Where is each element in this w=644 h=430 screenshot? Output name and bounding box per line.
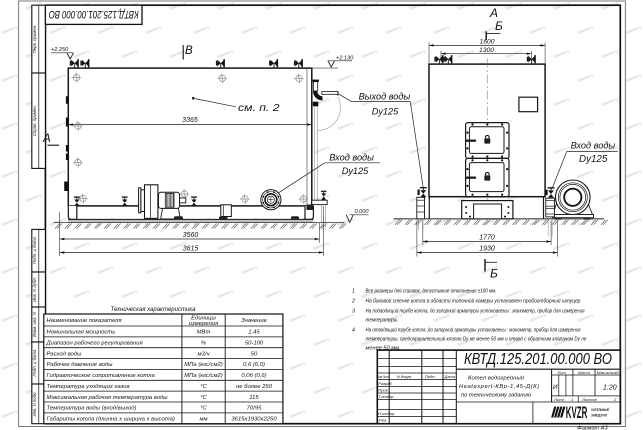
- svg-text:teplokot-kvzr.kz: teplokot-kvzr.kz: [625, 216, 643, 227]
- svg-text:teplokot-kvzr.kz: teplokot-kvzr.kz: [145, 24, 163, 35]
- svg-text:Взам. инв. N: Взам. инв. N: [32, 311, 37, 337]
- svg-text:teplokot-kvzr.kz: teplokot-kvzr.kz: [97, 264, 115, 275]
- svg-text:teplokot-kvzr.kz: teplokot-kvzr.kz: [289, 264, 307, 275]
- svg-text:teplokot-kvzr.kz: teplokot-kvzr.kz: [385, 264, 403, 275]
- svg-text:КВТД.125.201.00.000 ВО: КВТД.125.201.00.000 ВО: [48, 8, 138, 20]
- svg-text:3615: 3615: [183, 245, 199, 252]
- svg-text:teplokot-kvzr.kz: teplokot-kvzr.kz: [1, 120, 19, 131]
- svg-text:В: В: [185, 45, 193, 57]
- svg-text:Б: Б: [495, 19, 503, 33]
- svg-text:teplokot-kvzr.kz: teplokot-kvzr.kz: [361, 192, 379, 203]
- svg-text:teplokot-kvzr.kz: teplokot-kvzr.kz: [625, 360, 643, 371]
- svg-text:Гидравлическое сопротивление к: Гидравлическое сопротивление котла: [47, 373, 156, 379]
- svg-text:мм: мм: [199, 417, 207, 423]
- svg-text:teplokot-kvzr.kz: teplokot-kvzr.kz: [601, 336, 619, 347]
- svg-text:teplokot-kvzr.kz: teplokot-kvzr.kz: [505, 240, 523, 251]
- svg-text:Номинальная мощность: Номинальная мощность: [47, 330, 116, 336]
- svg-text:teplokot-kvzr.kz: teplokot-kvzr.kz: [289, 408, 307, 419]
- svg-text:teplokot-kvzr.kz: teplokot-kvzr.kz: [217, 240, 235, 251]
- svg-text:teplokot-kvzr.kz: teplokot-kvzr.kz: [553, 96, 571, 107]
- svg-text:Котел водогрейный: Котел водогрейный: [468, 374, 525, 381]
- svg-text:0.000: 0.000: [355, 209, 370, 215]
- svg-text:КВТД.125.201.00.000 ВО: КВТД.125.201.00.000 ВО: [464, 351, 612, 368]
- svg-text:teplokot-kvzr.kz: teplokot-kvzr.kz: [625, 72, 643, 83]
- svg-text:1770: 1770: [479, 234, 495, 241]
- svg-text:Перв. примен.: Перв. примен.: [32, 25, 37, 54]
- svg-text:МВт: МВт: [197, 330, 211, 336]
- svg-text:1: 1: [571, 397, 573, 402]
- svg-text:Инв. N подл.: Инв. N подл.: [32, 391, 37, 416]
- svg-text:teplokot-kvzr.kz: teplokot-kvzr.kz: [217, 288, 235, 299]
- svg-text:Дата: Дата: [444, 374, 456, 379]
- svg-text:teplokot-kvzr.kz: teplokot-kvzr.kz: [625, 24, 643, 35]
- svg-text:teplokot-kvzr.kz: teplokot-kvzr.kz: [25, 192, 43, 203]
- svg-text:2: 2: [351, 299, 355, 305]
- svg-text:Все размеры для справок, допус: Все размеры для справок, допустимые откл…: [366, 289, 497, 295]
- svg-text:teplokot-kvzr.kz: teplokot-kvzr.kz: [601, 48, 619, 59]
- svg-text:4: 4: [352, 327, 355, 333]
- svg-text:teplokot-kvzr.kz: teplokot-kvzr.kz: [385, 168, 403, 179]
- svg-text:teplokot-kvzr.kz: teplokot-kvzr.kz: [49, 168, 67, 179]
- svg-text:teplokot-kvzr.kz: teplokot-kvzr.kz: [409, 48, 427, 59]
- svg-text:teplokot-kvzr.kz: teplokot-kvzr.kz: [193, 24, 211, 35]
- svg-text:teplokot-kvzr.kz: teplokot-kvzr.kz: [1, 72, 19, 83]
- svg-text:teplokot-kvzr.kz: teplokot-kvzr.kz: [361, 384, 379, 395]
- svg-text:3: 3: [352, 308, 355, 314]
- svg-text:teplokot-kvzr.kz: teplokot-kvzr.kz: [49, 264, 67, 275]
- svg-text:Габариты котла (длинна х ширин: Габариты котла (длинна х ширина х высота…: [47, 417, 175, 423]
- svg-text:teplokot-kvzr.kz: teplokot-kvzr.kz: [529, 24, 547, 35]
- svg-text:teplokot-kvzr.kz: teplokot-kvzr.kz: [625, 312, 643, 323]
- svg-text:teplokot-kvzr.kz: teplokot-kvzr.kz: [625, 264, 643, 275]
- svg-text:На подводящий трубе котла, д: На подводящий трубе котла, до запорной а…: [366, 307, 585, 314]
- svg-text:teplokot-kvzr.kz: teplokot-kvzr.kz: [265, 48, 283, 59]
- svg-text:Температура воды (вход/выход): Температура воды (вход/выход): [47, 406, 137, 412]
- svg-text:teplokot-kvzr.kz: teplokot-kvzr.kz: [265, 288, 283, 299]
- svg-text:не более 250: не более 250: [236, 384, 273, 390]
- svg-text:Подп. и дата: Подп. и дата: [32, 349, 37, 377]
- svg-text:teplokot-kvzr.kz: teplokot-kvzr.kz: [241, 24, 259, 35]
- svg-text:Формат А3: Формат А3: [577, 426, 608, 430]
- svg-text:Утв.: Утв.: [378, 417, 387, 422]
- svg-text:teplokot-kvzr.kz: teplokot-kvzr.kz: [265, 240, 283, 251]
- svg-text:teplokot-kvzr.kz: teplokot-kvzr.kz: [385, 120, 403, 131]
- svg-text:1:20: 1:20: [603, 384, 617, 391]
- svg-text:Dy125: Dy125: [579, 154, 608, 165]
- svg-text:На отводящий трубе котла ,до з: На отводящий трубе котла ,до запорной ар…: [366, 326, 581, 333]
- svg-text:%: %: [201, 341, 206, 347]
- svg-text:Наименование показателя: Наименование показателя: [47, 318, 123, 324]
- svg-text:N докум.: N докум.: [397, 374, 412, 379]
- svg-text:Вход воды: Вход воды: [329, 153, 374, 163]
- svg-text:Листов: Листов: [581, 397, 597, 402]
- svg-text:1,45: 1,45: [248, 330, 260, 336]
- svg-text:50-100: 50-100: [245, 341, 264, 347]
- svg-text:teplokot-kvzr.kz: teplokot-kvzr.kz: [313, 144, 331, 155]
- svg-text:МПа (кгс/см2): МПа (кгс/см2): [184, 373, 223, 379]
- svg-text:teplokot-kvzr.kz: teplokot-kvzr.kz: [433, 264, 451, 275]
- svg-text:teplokot-kvzr.kz: teplokot-kvzr.kz: [1, 24, 19, 35]
- svg-text:Лист: Лист: [553, 397, 565, 402]
- svg-text:А: А: [42, 133, 51, 145]
- svg-text:1600: 1600: [479, 39, 494, 46]
- svg-text:teplokot-kvzr.kz: teplokot-kvzr.kz: [1, 216, 19, 227]
- svg-text:teplokot-kvzr.kz: teplokot-kvzr.kz: [577, 168, 595, 179]
- svg-text:Справ. примен.: Справ. примен.: [32, 105, 37, 136]
- svg-text:teplokot-kvzr.kz: teplokot-kvzr.kz: [193, 264, 211, 275]
- svg-text:teplokot-kvzr.kz: teplokot-kvzr.kz: [313, 240, 331, 251]
- svg-text:teplokot-kvzr.kz: teplokot-kvzr.kz: [625, 408, 643, 419]
- svg-text:teplokot-kvzr.kz: teplokot-kvzr.kz: [625, 120, 643, 131]
- svg-text:ЗАВОД РЭП: ЗАВОД РЭП: [591, 413, 607, 417]
- svg-text:+2.250: +2.250: [51, 47, 69, 53]
- svg-text:Вход воды: Вход воды: [571, 140, 616, 150]
- svg-text:Температура уходящих газов: Температура уходящих газов: [47, 384, 130, 390]
- svg-text:teplokot-kvzr.kz: teplokot-kvzr.kz: [505, 288, 523, 299]
- svg-text:Инв. N дубл.: Инв. N дубл.: [32, 277, 37, 302]
- svg-text:Значение: Значение: [241, 318, 268, 324]
- svg-text:teplokot-kvzr.kz: teplokot-kvzr.kz: [121, 48, 139, 59]
- svg-text:teplokot-kvzr.kz: teplokot-kvzr.kz: [1, 168, 19, 179]
- svg-text:teplokot-kvzr.kz: teplokot-kvzr.kz: [169, 288, 187, 299]
- svg-text:Масса: Масса: [578, 370, 591, 375]
- svg-text:teplokot-kvzr.kz: teplokot-kvzr.kz: [577, 120, 595, 131]
- svg-text:Подп.: Подп.: [425, 374, 436, 379]
- svg-text:teplokot-kvzr.kz: teplokot-kvzr.kz: [433, 216, 451, 227]
- svg-text:На боковой стенке котла в обла: На боковой стенке котла в области топочн…: [366, 298, 581, 305]
- svg-text:teplokot-kvzr.kz: teplokot-kvzr.kz: [313, 384, 331, 395]
- svg-text:teplokot-kvzr.kz: teplokot-kvzr.kz: [49, 24, 67, 35]
- svg-text:teplokot-kvzr.kz: teplokot-kvzr.kz: [337, 360, 355, 371]
- svg-text:по техническому заданию: по техническому заданию: [461, 392, 532, 398]
- svg-text:teplokot-kvzr.kz: teplokot-kvzr.kz: [337, 120, 355, 131]
- svg-text:Heatexpert-КВр-1,45-Д(К): Heatexpert-КВр-1,45-Д(К): [459, 384, 539, 390]
- svg-text:Изм Лист: Изм Лист: [378, 374, 389, 379]
- svg-text:3560: 3560: [183, 232, 199, 239]
- svg-text:температуры.: температуры.: [366, 318, 399, 324]
- svg-text:teplokot-kvzr.kz: teplokot-kvzr.kz: [385, 72, 403, 83]
- svg-text:Подп. и дата: Подп. и дата: [32, 237, 37, 265]
- svg-text:teplokot-kvzr.kz: teplokot-kvzr.kz: [337, 264, 355, 275]
- svg-text:teplokot-kvzr.kz: teplokot-kvzr.kz: [601, 240, 619, 251]
- svg-text:1930: 1930: [479, 245, 495, 252]
- svg-text:teplokot-kvzr.kz: teplokot-kvzr.kz: [457, 240, 475, 251]
- svg-text:teplokot-kvzr.kz: teplokot-kvzr.kz: [361, 240, 379, 251]
- svg-text:teplokot-kvzr.kz: teplokot-kvzr.kz: [433, 24, 451, 35]
- svg-text:teplokot-kvzr.kz: teplokot-kvzr.kz: [313, 48, 331, 59]
- svg-text:teplokot-kvzr.kz: teplokot-kvzr.kz: [529, 264, 547, 275]
- svg-text:3615х1930х2250: 3615х1930х2250: [231, 417, 277, 423]
- svg-text:А: А: [489, 6, 498, 20]
- svg-text:teplokot-kvzr.kz: teplokot-kvzr.kz: [553, 288, 571, 299]
- svg-text:teplokot-kvzr.kz: teplokot-kvzr.kz: [289, 24, 307, 35]
- svg-text:teplokot-kvzr.kz: teplokot-kvzr.kz: [553, 240, 571, 251]
- svg-text:Т.контр.: Т.контр.: [378, 394, 394, 399]
- svg-text:teplokot-kvzr.kz: teplokot-kvzr.kz: [313, 336, 331, 347]
- svg-text:teplokot-kvzr.kz: teplokot-kvzr.kz: [73, 288, 91, 299]
- svg-text:°С: °С: [200, 395, 207, 401]
- svg-text:МПа (кгс/см2): МПа (кгс/см2): [184, 362, 223, 368]
- svg-text:teplokot-kvzr.kz: teplokot-kvzr.kz: [121, 288, 139, 299]
- svg-text:3365: 3365: [182, 117, 198, 124]
- svg-text:teplokot-kvzr.kz: teplokot-kvzr.kz: [313, 288, 331, 299]
- svg-text:teplokot-kvzr.kz: teplokot-kvzr.kz: [409, 96, 427, 107]
- svg-text:teplokot-kvzr.kz: teplokot-kvzr.kz: [337, 72, 355, 83]
- svg-text:teplokot-kvzr.kz: teplokot-kvzr.kz: [49, 120, 67, 131]
- svg-text:teplokot-kvzr.kz: teplokot-kvzr.kz: [73, 240, 91, 251]
- svg-text:КОТЕЛЬНЫЙ: КОТЕЛЬНЫЙ: [591, 408, 609, 412]
- svg-text:teplokot-kvzr.kz: teplokot-kvzr.kz: [289, 360, 307, 371]
- svg-text:И: И: [553, 384, 558, 391]
- svg-text:teplokot-kvzr.kz: teplokot-kvzr.kz: [337, 24, 355, 35]
- svg-text:teplokot-kvzr.kz: teplokot-kvzr.kz: [1, 264, 19, 275]
- svg-text:°С: °С: [200, 384, 207, 390]
- svg-text:teplokot-kvzr.kz: teplokot-kvzr.kz: [73, 48, 91, 59]
- svg-text:°С: °С: [200, 406, 207, 412]
- svg-text:Dy125: Dy125: [342, 166, 369, 176]
- svg-text:м3/ч: м3/ч: [198, 351, 210, 357]
- svg-text:70/95: 70/95: [247, 406, 262, 412]
- svg-text:Максимальная рабочая температу: Максимальная рабочая температура воды: [47, 395, 169, 401]
- svg-text:115: 115: [249, 395, 259, 401]
- svg-text:Н.контр.: Н.контр.: [378, 411, 395, 416]
- svg-text:teplokot-kvzr.kz: teplokot-kvzr.kz: [337, 408, 355, 419]
- svg-text:teplokot-kvzr.kz: teplokot-kvzr.kz: [217, 48, 235, 59]
- svg-text:Масштаб: Масштаб: [597, 370, 620, 375]
- svg-text:KVZR: KVZR: [566, 404, 588, 422]
- svg-text:teplokot-kvzr.kz: teplokot-kvzr.kz: [625, 168, 643, 179]
- svg-text:teplokot-kvzr.kz: teplokot-kvzr.kz: [577, 264, 595, 275]
- svg-text:Рабочее давление воды: Рабочее давление воды: [47, 362, 114, 368]
- svg-text:см. п. 2: см. п. 2: [238, 102, 280, 114]
- svg-text:Разраб.: Разраб.: [378, 381, 392, 386]
- svg-text:0,6 (6,0): 0,6 (6,0): [243, 362, 265, 368]
- svg-text:Б: Б: [490, 267, 498, 281]
- svg-text:температуры, предохранительный: температуры, предохранительный клапан Dу…: [366, 336, 587, 343]
- svg-text:teplokot-kvzr.kz: teplokot-kvzr.kz: [97, 24, 115, 35]
- svg-text:teplokot-kvzr.kz: teplokot-kvzr.kz: [241, 264, 259, 275]
- svg-text:teplokot-kvzr.kz: teplokot-kvzr.kz: [49, 72, 67, 83]
- svg-text:teplokot-kvzr.kz: teplokot-kvzr.kz: [121, 240, 139, 251]
- svg-text:Выход воды: Выход воды: [359, 92, 411, 102]
- svg-text:teplokot-kvzr.kz: teplokot-kvzr.kz: [409, 240, 427, 251]
- svg-text:teplokot-kvzr.kz: teplokot-kvzr.kz: [601, 96, 619, 107]
- svg-text:Расход воды: Расход воды: [47, 351, 83, 357]
- svg-text:Dy125: Dy125: [372, 107, 399, 117]
- svg-text:0,06 (0,6): 0,06 (0,6): [241, 373, 266, 379]
- svg-text:Лит.: Лит.: [557, 370, 567, 375]
- svg-text:teplokot-kvzr.kz: teplokot-kvzr.kz: [361, 48, 379, 59]
- svg-text:teplokot-kvzr.kz: teplokot-kvzr.kz: [577, 72, 595, 83]
- svg-text:Техническая характеристика: Техническая характеристика: [111, 307, 197, 313]
- svg-text:teplokot-kvzr.kz: teplokot-kvzr.kz: [1, 360, 19, 371]
- svg-text:teplokot-kvzr.kz: teplokot-kvzr.kz: [1, 312, 19, 323]
- svg-text:teplokot-kvzr.kz: teplokot-kvzr.kz: [145, 264, 163, 275]
- svg-text:teplokot-kvzr.kz: teplokot-kvzr.kz: [289, 312, 307, 323]
- svg-text:50: 50: [251, 351, 258, 357]
- svg-text:teplokot-kvzr.kz: teplokot-kvzr.kz: [577, 24, 595, 35]
- svg-text:Диапазон рабочего регулировани: Диапазон рабочего регулирования: [46, 341, 144, 347]
- svg-text:измерения: измерения: [189, 321, 219, 327]
- svg-text:Пров.: Пров.: [378, 387, 389, 392]
- svg-text:teplokot-kvzr.kz: teplokot-kvzr.kz: [385, 24, 403, 35]
- svg-text:teplokot-kvzr.kz: teplokot-kvzr.kz: [601, 288, 619, 299]
- svg-text:1: 1: [352, 289, 355, 295]
- svg-text:1300: 1300: [479, 47, 494, 54]
- svg-text:teplokot-kvzr.kz: teplokot-kvzr.kz: [601, 192, 619, 203]
- svg-text:teplokot-kvzr.kz: teplokot-kvzr.kz: [553, 48, 571, 59]
- svg-text:teplokot-kvzr.kz: teplokot-kvzr.kz: [1, 408, 19, 419]
- svg-text:teplokot-kvzr.kz: teplokot-kvzr.kz: [553, 144, 571, 155]
